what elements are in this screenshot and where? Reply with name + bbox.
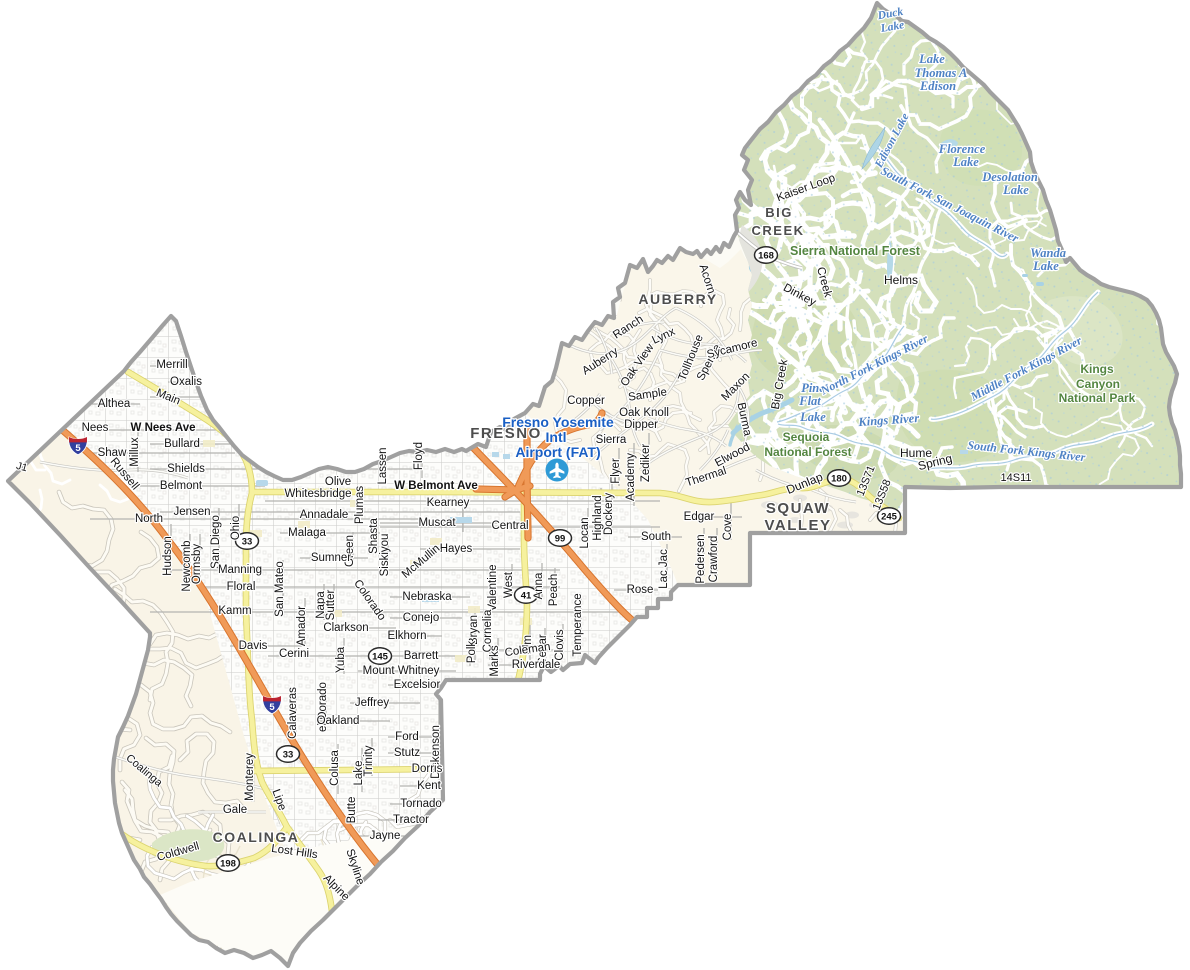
svg-text:Sierra National Forest: Sierra National Forest — [790, 244, 921, 258]
svg-text:Rose: Rose — [627, 584, 654, 596]
svg-text:180: 180 — [831, 473, 847, 484]
svg-text:Malaga: Malaga — [288, 527, 326, 539]
svg-text:Ford: Ford — [395, 731, 419, 743]
svg-text:Sequoia: Sequoia — [783, 430, 830, 444]
svg-text:Clovis: Clovis — [554, 629, 566, 661]
svg-text:Amador: Amador — [296, 606, 308, 646]
svg-text:198: 198 — [220, 858, 236, 869]
svg-text:Trinity: Trinity — [363, 745, 375, 776]
svg-text:Lake: Lake — [952, 155, 979, 169]
svg-text:Nebraska: Nebraska — [402, 591, 452, 603]
svg-text:Excelsior: Excelsior — [394, 679, 441, 691]
svg-text:Lake: Lake — [918, 52, 945, 66]
svg-text:Cerini: Cerini — [279, 648, 309, 660]
svg-text:Colusa: Colusa — [329, 750, 341, 786]
svg-text:Kings: Kings — [1080, 362, 1114, 376]
svg-text:Hayes: Hayes — [440, 543, 473, 555]
svg-text:CREEK: CREEK — [751, 223, 804, 238]
svg-text:Sierra: Sierra — [596, 434, 627, 446]
svg-text:Floyd: Floyd — [413, 442, 425, 470]
svg-text:Airport (FAT): Airport (FAT) — [515, 444, 600, 460]
svg-text:99: 99 — [555, 533, 566, 544]
svg-text:Manning: Manning — [218, 564, 262, 576]
svg-text:Althea: Althea — [98, 398, 131, 410]
svg-text:Bullard: Bullard — [164, 438, 200, 450]
svg-text:W Belmont Ave: W Belmont Ave — [394, 480, 478, 492]
svg-text:Tractor: Tractor — [393, 814, 429, 826]
svg-text:SQUAW: SQUAW — [766, 500, 830, 517]
svg-text:5: 5 — [75, 443, 81, 454]
svg-text:Marks: Marks — [489, 645, 501, 677]
svg-text:West: West — [503, 571, 515, 598]
svg-text:Fresno Yosemite: Fresno Yosemite — [502, 414, 614, 430]
svg-text:Copper: Copper — [567, 395, 605, 407]
svg-text:Yuba: Yuba — [335, 646, 347, 673]
svg-text:Mount Whitney: Mount Whitney — [363, 665, 440, 677]
svg-text:Olive: Olive — [325, 476, 351, 488]
svg-text:Kamm: Kamm — [218, 605, 251, 617]
svg-text:Intl: Intl — [546, 429, 567, 445]
svg-text:Floral: Floral — [227, 581, 256, 593]
svg-text:Lake: Lake — [1032, 259, 1059, 273]
svg-text:Thomas A: Thomas A — [915, 66, 968, 80]
svg-text:Stutz: Stutz — [394, 747, 420, 759]
svg-text:Elkhorn: Elkhorn — [388, 630, 427, 642]
svg-text:South: South — [641, 531, 671, 543]
svg-text:Anna: Anna — [533, 572, 545, 599]
svg-text:Bryan: Bryan — [468, 615, 480, 645]
svg-text:Annadale: Annadale — [300, 509, 349, 521]
svg-text:Sutter: Sutter — [325, 589, 337, 620]
svg-text:Flyer: Flyer — [610, 458, 622, 484]
svg-text:Valentine: Valentine — [487, 564, 499, 611]
svg-text:5: 5 — [269, 702, 275, 713]
svg-text:Kent: Kent — [417, 780, 441, 792]
svg-text:Polk: Polk — [466, 641, 478, 664]
svg-text:Hudson: Hudson — [162, 536, 174, 576]
svg-text:Peach: Peach — [548, 574, 560, 607]
svg-text:San Diego: San Diego — [210, 515, 222, 569]
svg-text:Barrett: Barrett — [404, 650, 439, 662]
svg-text:Monterey: Monterey — [244, 753, 256, 801]
svg-text:Crawford: Crawford — [708, 536, 720, 583]
svg-text:Dockery: Dockery — [603, 493, 615, 535]
svg-text:Desolation: Desolation — [981, 170, 1038, 184]
svg-text:Butte: Butte — [346, 797, 358, 824]
svg-text:Lac Jac: Lac Jac — [658, 549, 670, 589]
svg-text:W Nees Ave: W Nees Ave — [131, 422, 196, 434]
svg-text:245: 245 — [881, 511, 898, 522]
svg-text:Clarkson: Clarkson — [323, 622, 368, 634]
svg-text:Davis: Davis — [239, 640, 268, 652]
svg-text:Cove: Cove — [722, 514, 734, 541]
svg-text:Jayne: Jayne — [370, 830, 401, 842]
svg-text:145: 145 — [372, 651, 389, 662]
svg-text:168: 168 — [758, 250, 774, 261]
svg-text:Millux: Millux — [129, 437, 141, 467]
svg-text:Ohio: Ohio — [230, 516, 242, 540]
svg-text:Shields: Shields — [167, 463, 205, 475]
svg-text:Whitesbridge: Whitesbridge — [284, 488, 351, 500]
svg-text:Central: Central — [491, 520, 528, 532]
svg-text:Jeffrey: Jeffrey — [355, 697, 390, 709]
svg-text:Dipper: Dipper — [624, 419, 658, 431]
svg-text:San Mateo: San Mateo — [274, 561, 286, 617]
svg-text:Gale: Gale — [223, 804, 247, 816]
svg-text:Lassen: Lassen — [377, 447, 389, 484]
svg-text:National Forest: National Forest — [764, 445, 851, 459]
svg-text:Muscat: Muscat — [418, 517, 456, 529]
svg-text:Oak Knoll: Oak Knoll — [619, 407, 669, 419]
svg-text:Flat: Flat — [798, 394, 821, 408]
svg-text:Jensen: Jensen — [173, 506, 210, 518]
svg-text:33: 33 — [283, 749, 294, 760]
svg-text:Locan: Locan — [579, 517, 591, 548]
svg-text:Florence: Florence — [938, 142, 986, 156]
svg-text:Lake: Lake — [799, 410, 826, 424]
svg-text:Kearney: Kearney — [427, 497, 470, 509]
svg-text:Edison: Edison — [919, 79, 956, 93]
svg-text:Plumas: Plumas — [354, 486, 366, 525]
svg-text:Zediker: Zediker — [640, 444, 652, 483]
svg-text:Shaw: Shaw — [98, 447, 127, 459]
svg-text:41: 41 — [521, 590, 532, 601]
svg-text:Academy: Academy — [625, 453, 637, 501]
svg-text:Canyon: Canyon — [1076, 377, 1120, 391]
svg-text:Dorris: Dorris — [412, 763, 443, 775]
svg-text:Nees: Nees — [82, 422, 109, 434]
svg-text:Merrill: Merrill — [156, 359, 187, 371]
svg-text:Ormsby: Ormsby — [191, 544, 203, 585]
svg-text:33: 33 — [242, 536, 253, 547]
svg-text:COALINGA: COALINGA — [213, 829, 300, 845]
svg-text:VALLEY: VALLEY — [764, 517, 831, 534]
svg-text:Tornado: Tornado — [400, 798, 442, 810]
svg-text:North: North — [135, 513, 163, 525]
svg-text:Belmont: Belmont — [160, 480, 203, 492]
svg-text:Conejo: Conejo — [403, 612, 439, 624]
svg-text:National Park: National Park — [1059, 391, 1136, 405]
svg-text:Edgar: Edgar — [684, 511, 715, 523]
svg-text:Oxalis: Oxalis — [170, 376, 202, 388]
svg-text:Siskiyou: Siskiyou — [379, 534, 391, 577]
svg-text:Temperance: Temperance — [572, 593, 584, 656]
svg-text:Oakland: Oakland — [317, 715, 360, 727]
svg-text:Riverdale: Riverdale — [512, 659, 561, 671]
svg-text:Helms: Helms — [884, 273, 918, 287]
svg-text:BIG: BIG — [765, 205, 793, 220]
svg-text:Pedersen: Pedersen — [695, 534, 707, 583]
svg-text:Sumner: Sumner — [311, 552, 351, 564]
svg-text:Calaveras: Calaveras — [287, 687, 299, 739]
svg-text:14S11: 14S11 — [1001, 472, 1032, 484]
svg-text:Wanda: Wanda — [1030, 246, 1066, 260]
svg-text:Lake: Lake — [1002, 183, 1029, 197]
